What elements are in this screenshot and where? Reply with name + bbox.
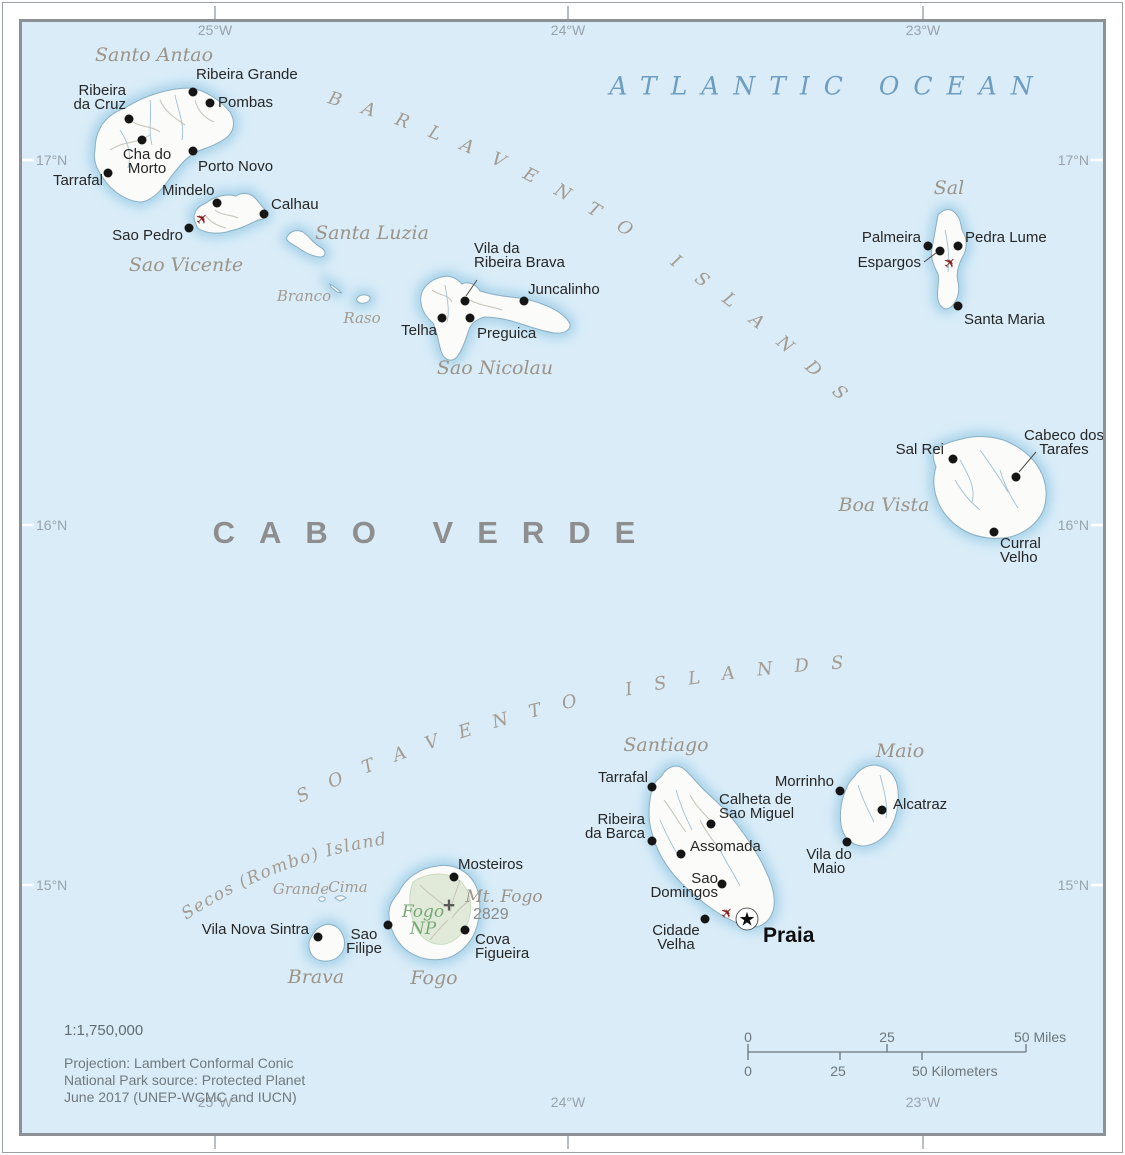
city-label: SaoFilipe xyxy=(346,928,382,956)
city-label: Morrinho xyxy=(775,775,834,789)
city-label: Assomada xyxy=(690,840,761,854)
city-label: Tarrafal xyxy=(53,174,103,188)
island-name-label: Brava xyxy=(288,966,344,988)
city-label: Vila daRibeira Brava xyxy=(474,242,565,270)
scalebar-km-0: 0 xyxy=(744,1063,752,1079)
lon-label-top-24w: 24°W xyxy=(551,22,585,38)
projection-text: Projection: Lambert Conformal Conic xyxy=(64,1055,305,1072)
city-label: Pombas xyxy=(218,96,273,110)
city-label: Pedra Lume xyxy=(965,231,1047,245)
lat-label-left-15n: 15°N xyxy=(36,877,67,893)
map-scale-text: 1:1,750,000 xyxy=(64,1022,305,1039)
lat-label-right-15n: 15°N xyxy=(1058,877,1089,893)
island-name-label: Sao Vicente xyxy=(129,254,243,276)
city-label: Calheta deSao Miguel xyxy=(719,793,794,821)
island-name-label: Cima xyxy=(328,878,367,896)
city-label: Porto Novo xyxy=(198,160,273,174)
city-label: Ribeirada Cruz xyxy=(73,84,126,112)
island-name-label: Sao Nicolau xyxy=(437,357,553,379)
scalebar-km-50: 50 Kilometers xyxy=(912,1063,998,1079)
city-label: Sao Pedro xyxy=(112,229,183,243)
city-label: Ribeira Grande xyxy=(196,68,298,82)
city-label: CidadeVelha xyxy=(652,924,700,952)
scalebar-miles-0: 0 xyxy=(744,1029,752,1045)
city-label: Telha xyxy=(401,324,437,338)
island-name-label: Fogo xyxy=(410,967,457,989)
city-label: Sal Rei xyxy=(896,443,944,457)
national-park-label: FogoNP xyxy=(402,904,444,938)
city-label: Cabeco dosTarafes xyxy=(1024,429,1104,457)
lon-label-top-23w: 23°W xyxy=(906,22,940,38)
island-name-label: Santiago xyxy=(623,734,708,756)
city-label: Ribeirada Barca xyxy=(585,813,645,841)
country-label: CABO VERDE xyxy=(213,515,660,551)
city-label: Alcatraz xyxy=(893,798,947,812)
map-page: { "country_label": "CABO VERDE", "sea": … xyxy=(0,0,1125,1155)
map-labels: 25°W 24°W 23°W 25°W 24°W 23°W 17°N 16°N … xyxy=(0,0,1125,1155)
scalebar-miles-50: 50 Miles xyxy=(1014,1029,1066,1045)
island-name-label: Sal xyxy=(934,177,964,199)
lat-label-right-17n: 17°N xyxy=(1058,152,1089,168)
city-label: CurralVelho xyxy=(1000,537,1041,565)
city-label: Espargos xyxy=(858,256,921,270)
atlantic-ocean-label: ATLANTIC OCEAN xyxy=(609,72,1046,101)
city-label: SaoDomingos xyxy=(650,872,718,900)
scalebar-miles-25: 25 xyxy=(879,1029,895,1045)
peak-elevation-label: 2829 xyxy=(473,906,509,924)
date-text: June 2017 (UNEP-WCMC and IUCN) xyxy=(64,1089,305,1106)
city-label: Santa Maria xyxy=(964,313,1045,327)
city-label: Palmeira xyxy=(862,231,921,245)
island-name-label: Raso xyxy=(343,309,380,327)
scalebar-km-25: 25 xyxy=(830,1063,846,1079)
city-label: CovaFigueira xyxy=(475,933,529,961)
city-label: Tarrafal xyxy=(598,771,648,785)
city-label: Juncalinho xyxy=(528,283,600,297)
lon-label-bottom-23w: 23°W xyxy=(906,1094,940,1110)
lat-label-left-17n: 17°N xyxy=(36,152,67,168)
city-label: Mosteiros xyxy=(458,858,523,872)
np-source-text: National Park source: Protected Planet xyxy=(64,1072,305,1089)
city-label: Preguica xyxy=(477,327,536,341)
lat-label-right-16n: 16°N xyxy=(1058,517,1089,533)
city-label: Vila Nova Sintra xyxy=(202,923,309,937)
island-name-label: Boa Vista xyxy=(839,494,930,516)
lat-label-left-16n: 16°N xyxy=(36,517,67,533)
lon-label-bottom-24w: 24°W xyxy=(551,1094,585,1110)
island-name-label: Santo Antao xyxy=(95,44,213,66)
island-name-label: Maio xyxy=(876,740,924,762)
city-label: Praia xyxy=(763,926,814,946)
city-label: Cha doMorto xyxy=(123,148,171,176)
island-name-label: Santa Luzia xyxy=(315,222,429,244)
island-name-label: Branco xyxy=(277,287,331,305)
city-label: Vila doMaio xyxy=(806,848,852,876)
credits-block: 1:1,750,000 Projection: Lambert Conforma… xyxy=(64,1022,305,1106)
lon-label-top-25w: 25°W xyxy=(198,22,232,38)
island-name-label: Grande xyxy=(273,880,329,898)
city-label: Calhau xyxy=(271,198,319,212)
city-label: Mindelo xyxy=(162,184,215,198)
peak-name-label: Mt. Fogo xyxy=(465,887,542,907)
